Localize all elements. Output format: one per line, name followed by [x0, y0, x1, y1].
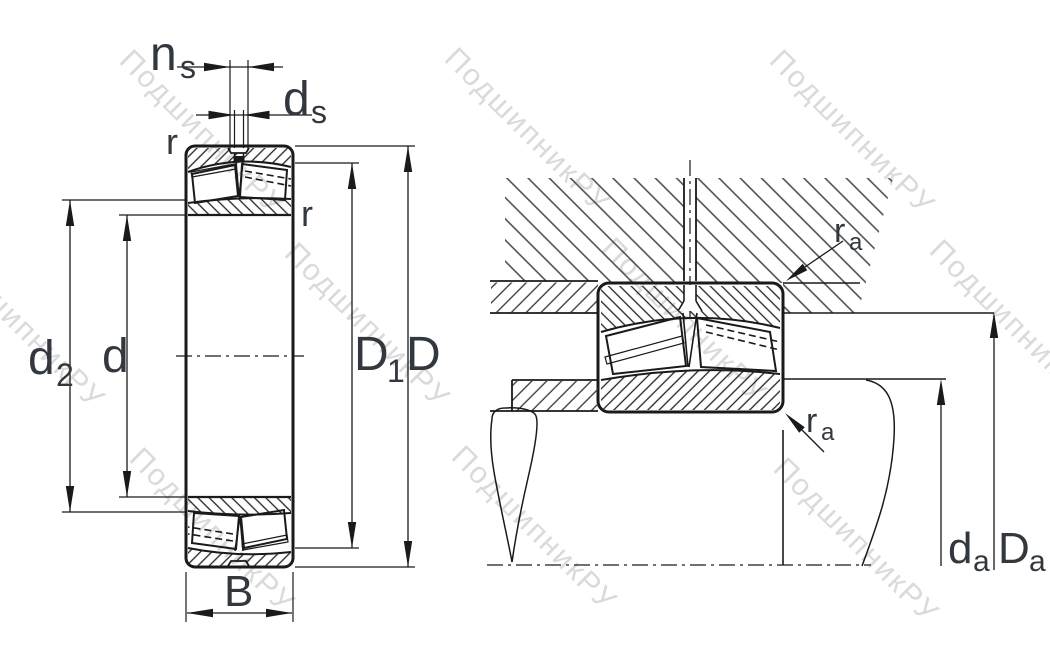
label-B: B: [224, 567, 253, 616]
watermark-text: ПодшипникРУ: [123, 442, 301, 620]
label-d2-sub: 2: [56, 357, 74, 393]
label-ns-sub: s: [180, 49, 196, 85]
bearing-technical-drawing-page: ПодшипникРУПодшипникРУПодшипникРУПодшипн…: [0, 0, 1050, 650]
shaft-shoulder-section: [512, 381, 598, 411]
label-Da-sub: a: [1029, 545, 1046, 578]
label-ra-top-sub: a: [849, 229, 863, 256]
ra-callout-bottom: [785, 413, 824, 452]
watermark-text: ПодшипникРУ: [445, 440, 623, 618]
mounted-view: r a r a d a D a: [487, 160, 1046, 578]
watermark-text: ПодшипникРУ: [113, 44, 291, 222]
watermark-text: ПодшипникРУ: [923, 234, 1050, 412]
label-da-sub: a: [973, 545, 990, 578]
housing-shoulder-section: [491, 283, 598, 313]
label-r-side: r: [301, 193, 313, 234]
dim-Da: [990, 312, 998, 570]
label-ra-bottom-sub: a: [821, 419, 835, 446]
label-ns-main: n: [150, 28, 177, 81]
label-ra-top-main: r: [834, 212, 845, 250]
label-Da-main: D: [998, 524, 1030, 573]
label-D1-main: D: [354, 328, 389, 381]
label-r-top: r: [166, 121, 178, 162]
watermark-text: ПодшипникРУ: [767, 452, 945, 630]
label-ra-bottom-main: r: [806, 402, 817, 440]
dim-da: [937, 379, 945, 566]
label-d2-main: d: [28, 332, 55, 385]
label-d: d: [102, 330, 129, 383]
watermark-layer: ПодшипникРУПодшипникРУПодшипникРУПодшипн…: [0, 42, 1050, 630]
ra-arrow-bottom: [785, 413, 805, 433]
label-ds-sub: s: [311, 94, 327, 130]
label-D: D: [406, 328, 441, 381]
label-D1-sub: 1: [387, 353, 405, 389]
cage-section-mounted: [605, 336, 684, 364]
bearing-technical-drawing: ПодшипникРУПодшипникРУПодшипникРУПодшипн…: [0, 0, 1050, 650]
inner-ring-top-section: [188, 198, 291, 215]
watermark-text: ПодшипникРУ: [278, 237, 456, 415]
label-da-main: d: [948, 524, 972, 573]
inner-ring-mounted: [601, 370, 780, 410]
label-ds-main: d: [283, 73, 310, 126]
